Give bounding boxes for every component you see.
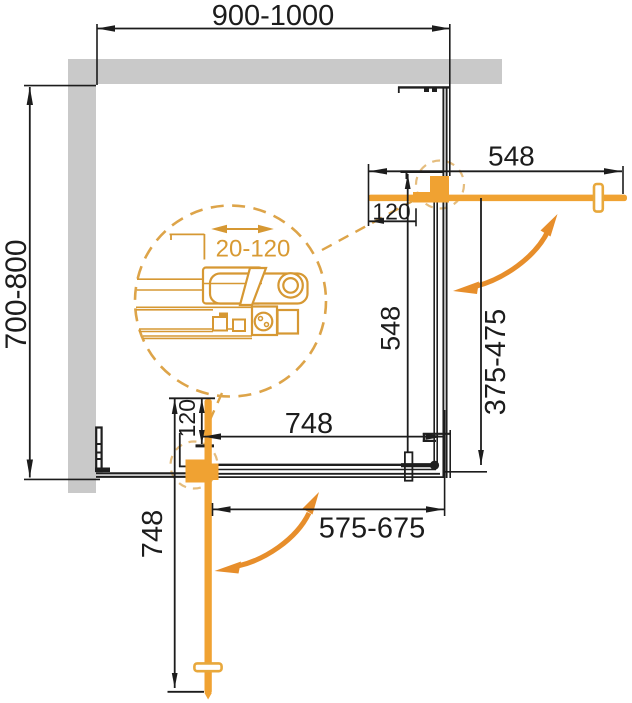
svg-text:548: 548 xyxy=(376,306,406,351)
svg-text:900-1000: 900-1000 xyxy=(212,0,335,32)
svg-text:748: 748 xyxy=(285,408,333,440)
svg-text:575-675: 575-675 xyxy=(319,513,425,545)
svg-text:120: 120 xyxy=(174,399,200,437)
svg-text:20-120: 20-120 xyxy=(216,236,291,263)
svg-text:700-800: 700-800 xyxy=(0,239,33,349)
svg-text:120: 120 xyxy=(372,199,410,225)
svg-text:375-475: 375-475 xyxy=(480,309,512,415)
svg-text:548: 548 xyxy=(488,141,535,172)
svg-text:748: 748 xyxy=(137,510,169,558)
